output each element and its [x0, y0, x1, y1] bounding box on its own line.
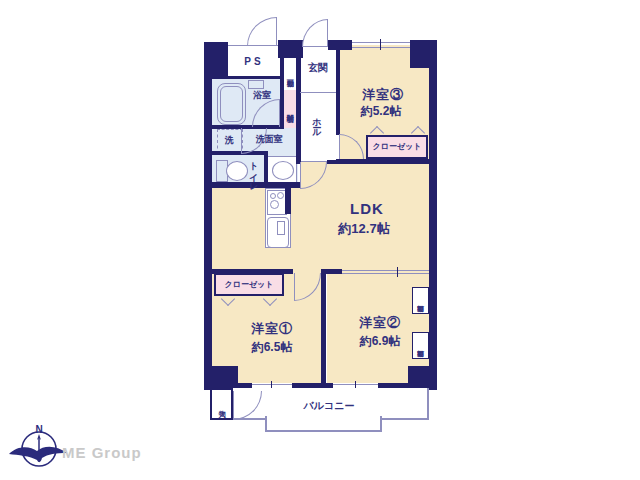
window-room3-tick [380, 39, 381, 50]
label-closet-room3: クローゼット [373, 143, 422, 152]
storage-balcony-box [210, 388, 233, 420]
label-ldk-size: 約12.7帖 [338, 222, 389, 236]
stove-burner3-icon [270, 200, 279, 209]
label-hall: ホール [311, 112, 321, 133]
label-room2-name: 洋室② [359, 316, 401, 330]
label-room1-name: 洋室① [251, 322, 293, 336]
wall-corner-top-left [204, 42, 228, 76]
wall-bathroom-top [212, 76, 280, 79]
label-room3-name: 洋室③ [362, 88, 404, 102]
stove-burner2-icon [277, 192, 284, 199]
label-genkan: 玄関 [308, 62, 328, 73]
wall-corner-bottom-left [204, 366, 238, 390]
balcony-bay [265, 416, 382, 432]
label-ps: PS [244, 56, 263, 67]
wall-ps-genkan-block [278, 40, 303, 58]
wall-corner-bottom-right [408, 366, 437, 390]
compass-bird-logo-icon: N [6, 420, 70, 472]
label-room1-size: 約6.5帖 [252, 341, 293, 354]
wall-toilet-top [212, 151, 268, 155]
label-room3-size: 約5.2帖 [361, 105, 402, 118]
wall-room3-bottom [337, 159, 429, 164]
logo-text: ME Group [62, 444, 142, 461]
label-washer: 洗 [225, 136, 234, 146]
wall-strip-left [280, 58, 284, 128]
label-bathroom: 浴室 [253, 91, 271, 101]
wall-corner-top-right [410, 40, 429, 68]
partition-ldk-room2-line1 [342, 270, 429, 271]
compass-north-label: N [35, 424, 42, 435]
window-room3-line2 [352, 47, 410, 48]
window-room3-line1 [352, 42, 410, 43]
wall-room1-room2 [321, 272, 326, 385]
partition-ldk-room2-tick [397, 267, 398, 277]
label-toilet: トイレ [248, 156, 258, 187]
genkan-hall-step [300, 92, 336, 93]
label-ldk-name: LDK [350, 201, 384, 218]
label-washroom: 洗面室 [256, 135, 283, 145]
wall-strip-right [296, 58, 301, 162]
shelf-room2-bottom-box [412, 332, 429, 359]
wall-genkan-room3 [336, 43, 340, 135]
vanity-sink-icon [272, 161, 294, 180]
label-balcony: バルコニー [304, 400, 355, 411]
door-arc-ps [247, 17, 277, 46]
partition-ldk-room2-line2 [342, 273, 429, 274]
label-closet-room1: クローゼット [225, 281, 274, 290]
kitchen-tap-icon [277, 221, 285, 235]
window-room1-line1 [252, 384, 292, 385]
wall-right [429, 40, 437, 390]
bathtub-inner-icon [220, 86, 243, 122]
wall-top-genkan-right [328, 40, 352, 50]
stove-burner1-icon [270, 193, 276, 199]
wall-kitchen-side [285, 186, 291, 214]
shelf-room2-top-box [412, 287, 429, 314]
door-arc-entrance [302, 19, 328, 47]
label-room2-size: 約6.9帖 [360, 335, 401, 348]
wall-left [204, 42, 212, 390]
bath-counter-icon [248, 80, 264, 89]
toilet-bowl-icon [226, 161, 248, 181]
